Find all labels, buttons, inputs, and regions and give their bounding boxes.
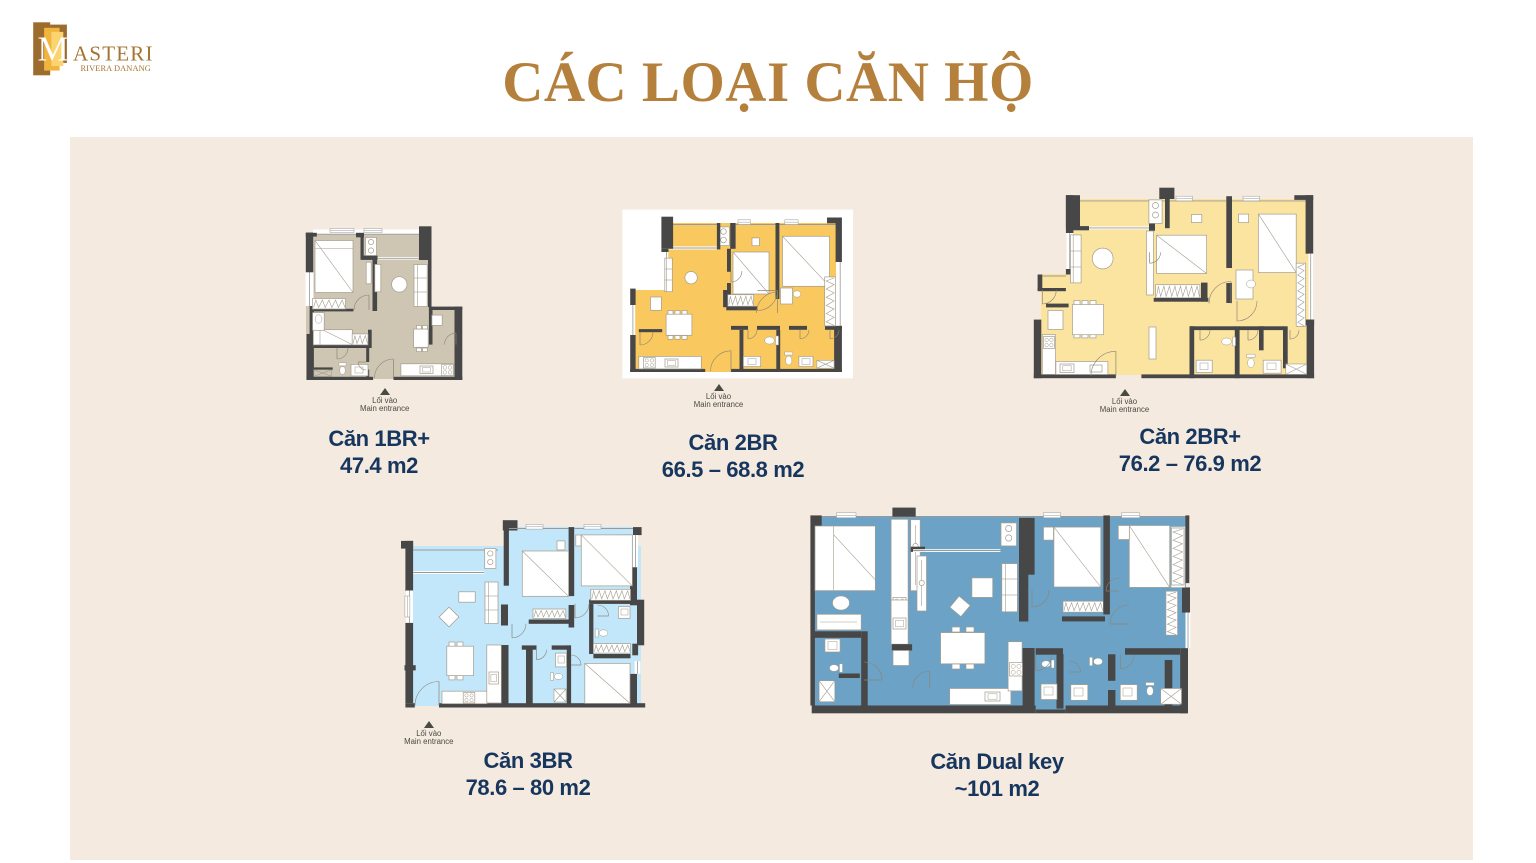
svg-text:M: M: [38, 30, 69, 69]
svg-text:ASTERI: ASTERI: [73, 42, 154, 66]
svg-text:RIVERA DANANG: RIVERA DANANG: [81, 64, 151, 73]
